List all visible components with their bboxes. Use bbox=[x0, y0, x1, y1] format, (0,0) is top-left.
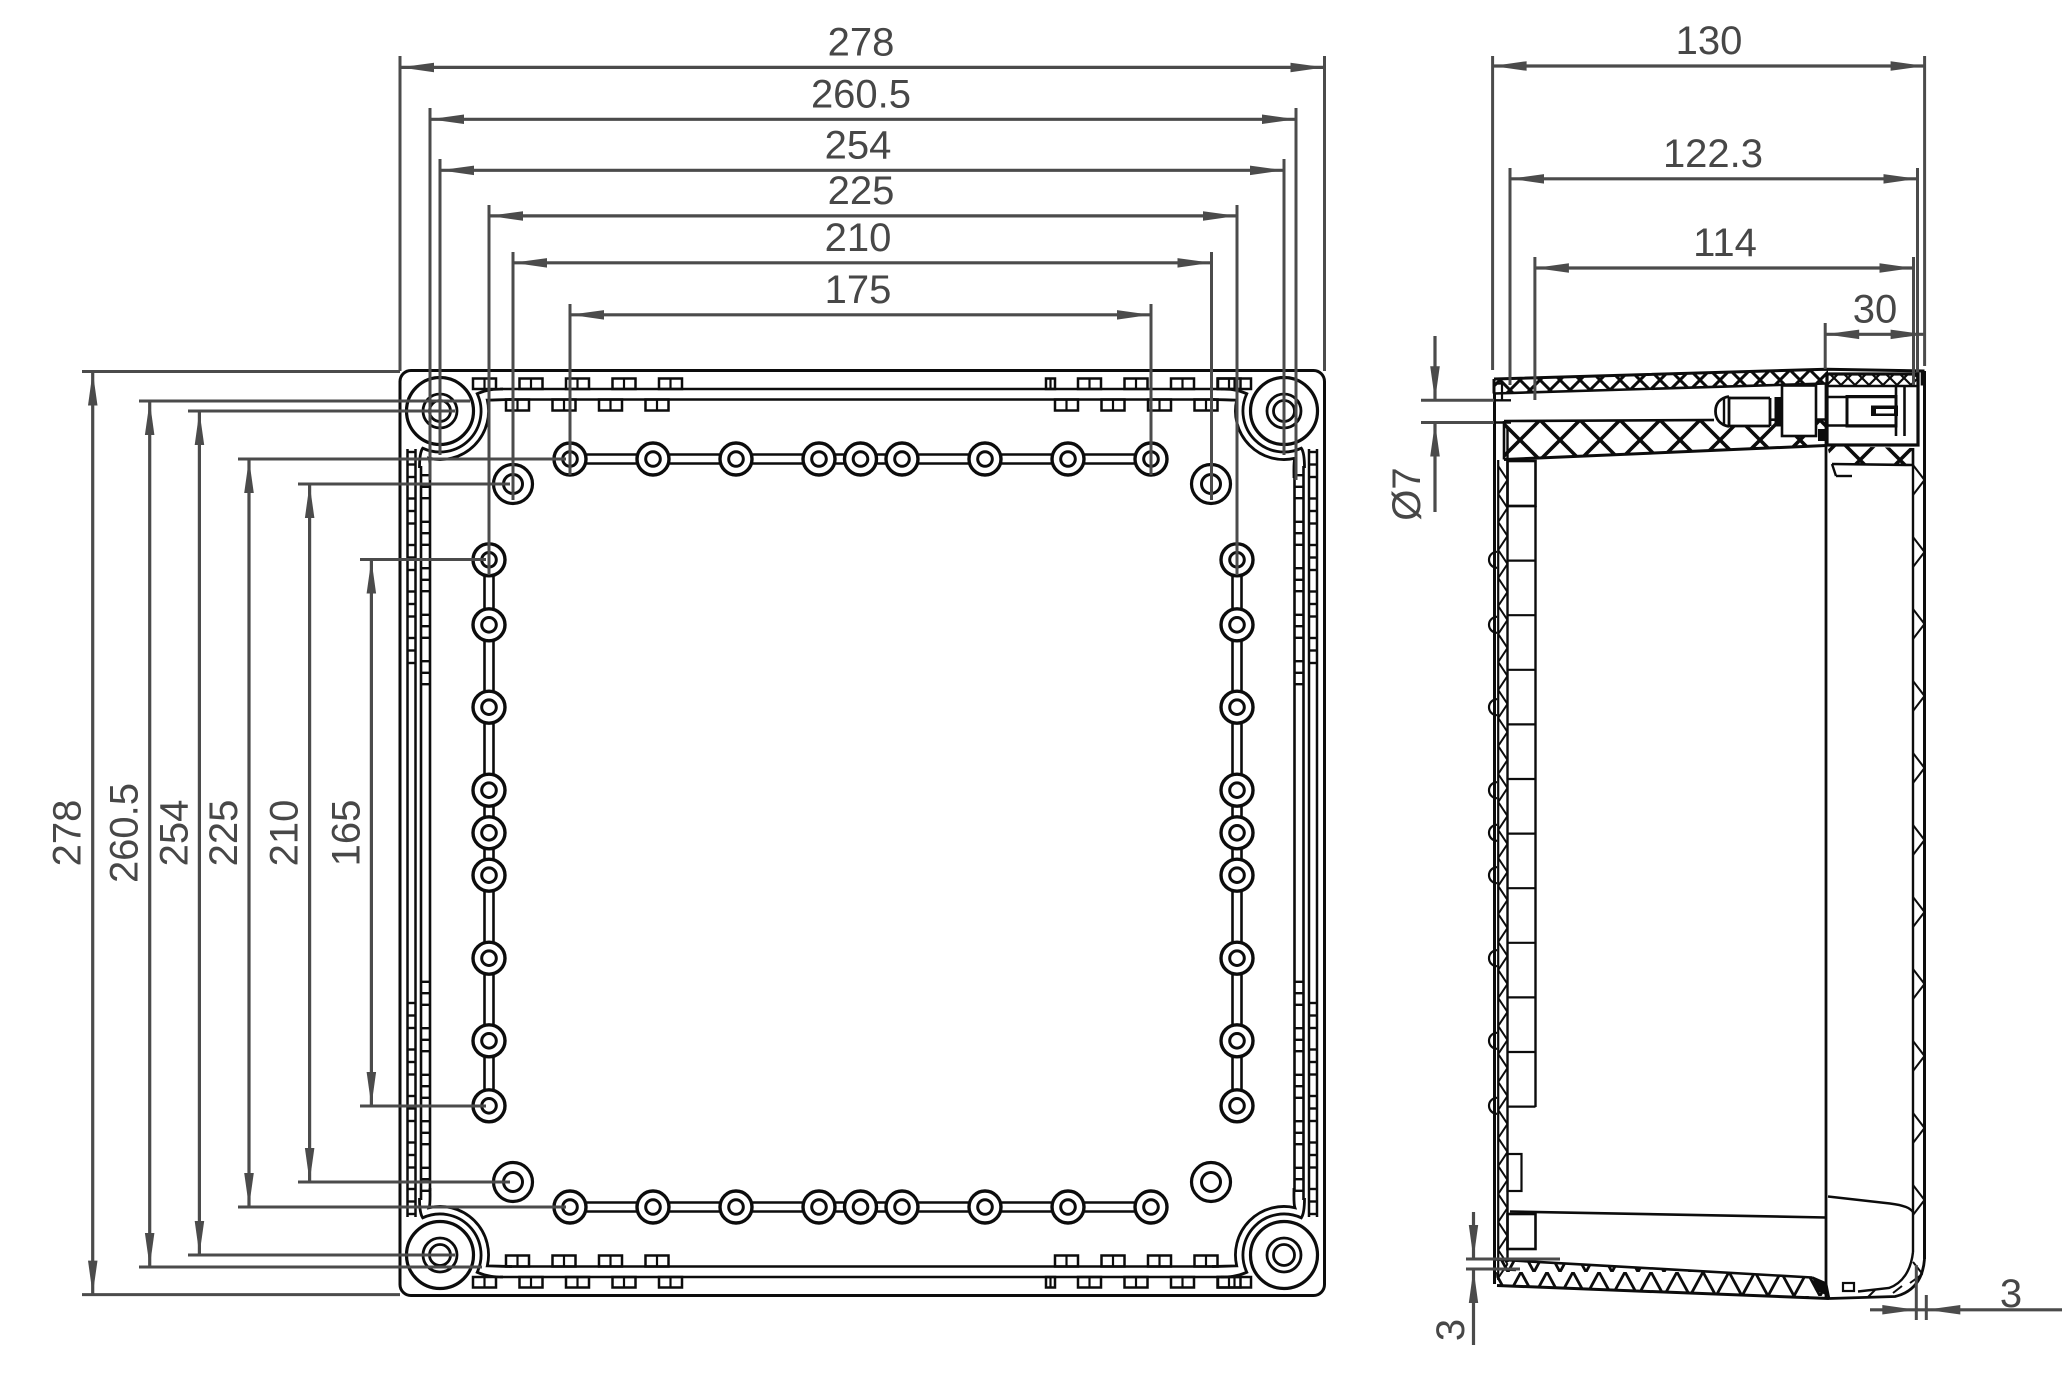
svg-text:175: 175 bbox=[825, 268, 892, 312]
svg-text:278: 278 bbox=[828, 20, 895, 64]
svg-text:130: 130 bbox=[1676, 19, 1743, 63]
svg-text:278: 278 bbox=[46, 800, 90, 867]
svg-text:260.5: 260.5 bbox=[811, 72, 911, 116]
svg-text:210: 210 bbox=[825, 216, 892, 260]
svg-text:225: 225 bbox=[828, 169, 895, 213]
svg-text:260.5: 260.5 bbox=[103, 783, 147, 883]
svg-text:114: 114 bbox=[1693, 221, 1757, 265]
svg-text:3: 3 bbox=[1429, 1319, 1473, 1341]
svg-text:225: 225 bbox=[202, 800, 246, 867]
svg-text:Ø7: Ø7 bbox=[1385, 467, 1429, 520]
svg-text:210: 210 bbox=[263, 800, 307, 867]
svg-text:254: 254 bbox=[825, 123, 892, 167]
svg-text:122.3: 122.3 bbox=[1663, 132, 1763, 176]
svg-text:3: 3 bbox=[2000, 1272, 2022, 1316]
svg-text:165: 165 bbox=[324, 800, 368, 867]
svg-text:30: 30 bbox=[1853, 287, 1898, 331]
svg-text:254: 254 bbox=[152, 800, 196, 867]
